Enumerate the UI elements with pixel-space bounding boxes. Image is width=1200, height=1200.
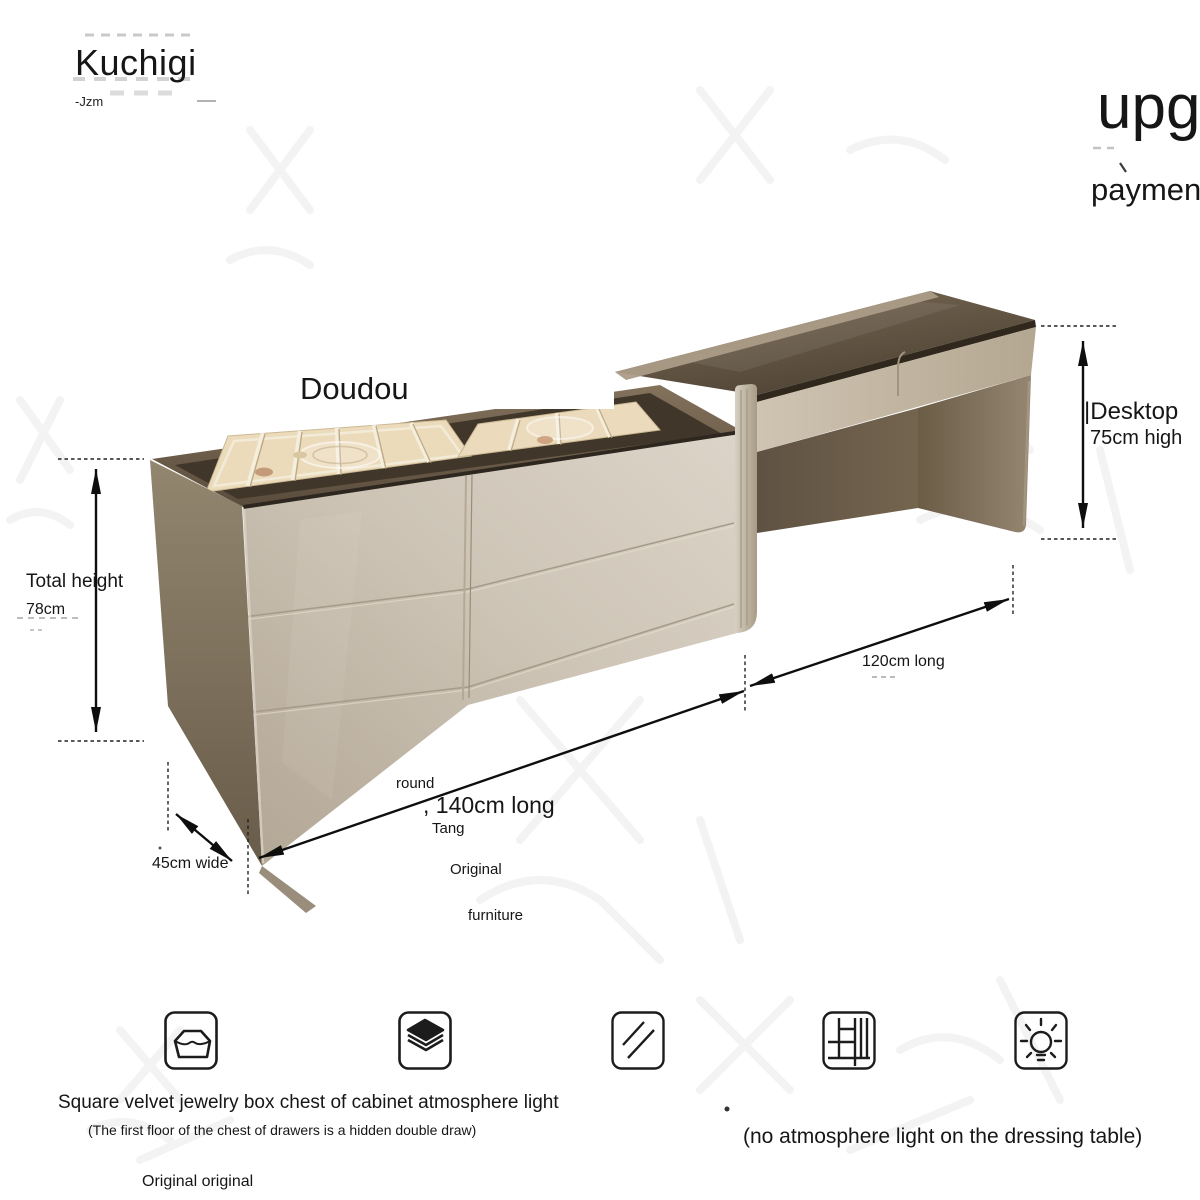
word-furniture: furniture <box>468 907 523 924</box>
total-height-label: Total height <box>26 571 123 593</box>
jewelry-box-icon <box>164 1011 218 1071</box>
desktop-value: 75cm high <box>1090 427 1182 450</box>
mirror-glass-icon <box>611 1011 665 1071</box>
desktop-label: |Desktop <box>1084 398 1178 426</box>
brand-name: Kuchigi <box>75 42 197 83</box>
velvet-layers-icon <box>398 1011 452 1071</box>
watch-dome <box>527 417 593 439</box>
promo-text-top: upg <box>1097 72 1200 143</box>
width-label: 45cm wide <box>152 855 228 873</box>
promo-text-bottom: paymen <box>1091 172 1200 208</box>
desk-length-label: 120cm long <box>862 653 945 671</box>
word-tang: Tang <box>432 820 465 837</box>
chest-plinth <box>259 866 316 913</box>
features-caption: Square velvet jewelry box chest of cabin… <box>58 1092 559 1114</box>
compartment-grid-icon <box>822 1011 876 1071</box>
jewelry-item <box>293 452 307 459</box>
note-left: Original original <box>142 1173 253 1191</box>
brand-subtitle: -Jzm <box>75 95 103 110</box>
jewelry-item <box>255 468 273 477</box>
features-subcaption: (The first floor of the chest of drawers… <box>88 1122 476 1138</box>
product-label: Doudou <box>300 371 409 407</box>
chest-end-post <box>735 384 757 633</box>
word-original: Original <box>450 861 502 878</box>
chest-length-prefix: round <box>396 775 434 792</box>
arrow-desk-length <box>750 599 1009 686</box>
atmosphere-light-icon <box>1014 1011 1068 1071</box>
note-right: (no atmosphere light on the dressing tab… <box>743 1125 1142 1149</box>
jewelry-item <box>537 436 553 444</box>
chest-length-label: , 140cm long <box>423 792 555 818</box>
arrow-width <box>176 814 232 861</box>
total-height-value: 78cm <box>26 601 65 619</box>
product-infographic: Kuchigi -Jzm upg paymen Doudou Total hei… <box>0 0 1200 1200</box>
